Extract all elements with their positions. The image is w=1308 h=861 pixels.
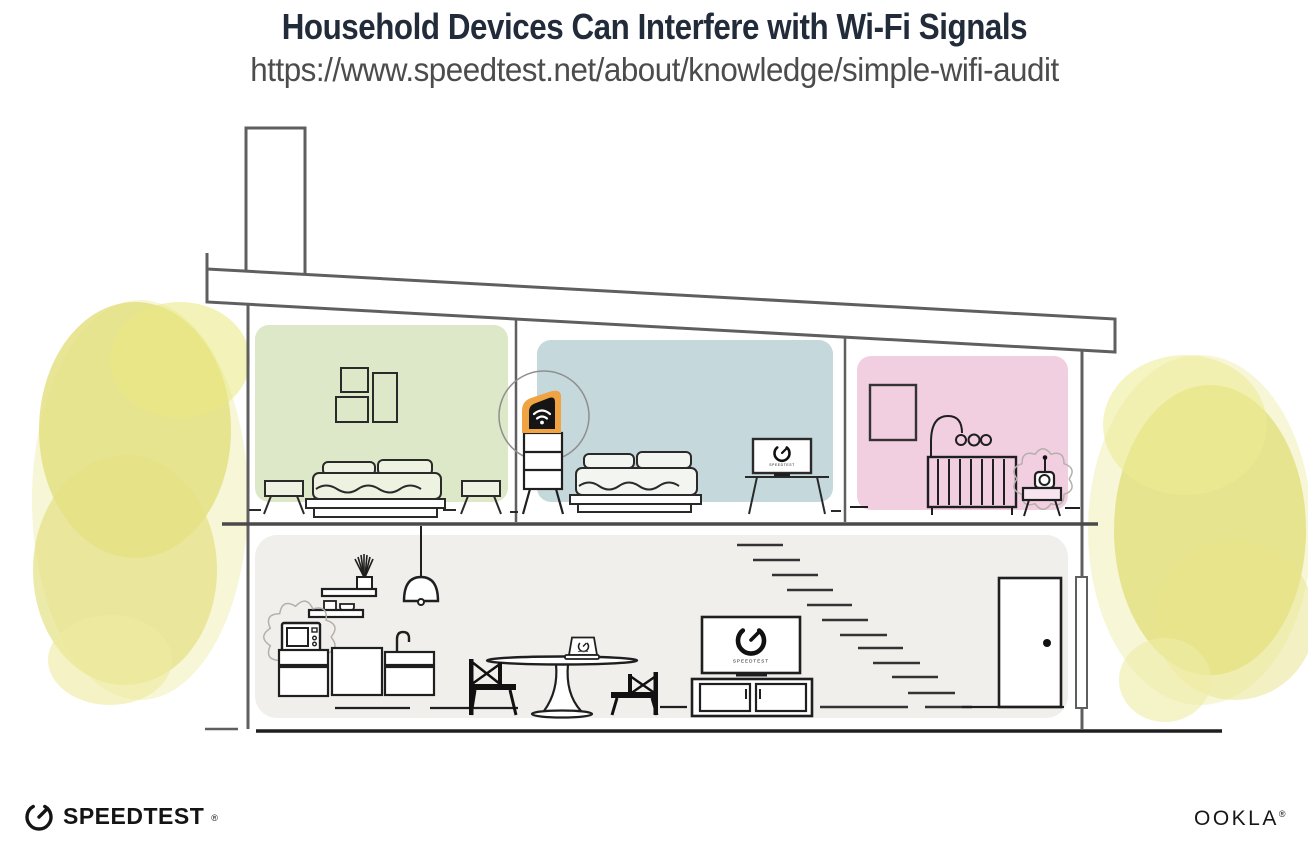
tv-screen-label: SPEEDTEST bbox=[733, 659, 769, 664]
speedtest-gauge-icon bbox=[22, 799, 56, 833]
registered-mark: ® bbox=[1279, 809, 1288, 819]
speedtest-wordmark: SPEEDTEST bbox=[63, 803, 204, 830]
ookla-logo: OOKLA® bbox=[1194, 807, 1288, 831]
wifi-router-icon bbox=[522, 391, 561, 433]
tv-screen-label: SPEEDTEST bbox=[769, 463, 795, 467]
living-room-tv: SPEEDTEST bbox=[702, 617, 800, 677]
infographic-page: Household Devices Can Interfere with Wi-… bbox=[0, 0, 1308, 861]
tree-right bbox=[1088, 355, 1308, 722]
bed bbox=[306, 460, 445, 517]
downspout bbox=[1076, 577, 1087, 708]
ookla-wordmark: OOKLA bbox=[1194, 807, 1279, 830]
tree-left bbox=[32, 300, 250, 705]
speedtest-logo: SPEEDTEST ® bbox=[22, 799, 218, 833]
chimney bbox=[246, 128, 305, 280]
registered-mark: ® bbox=[211, 813, 218, 823]
media-console bbox=[692, 679, 812, 716]
door-knob bbox=[1043, 639, 1051, 647]
house-cross-section-illustration: SPEEDTEST bbox=[0, 0, 1308, 861]
